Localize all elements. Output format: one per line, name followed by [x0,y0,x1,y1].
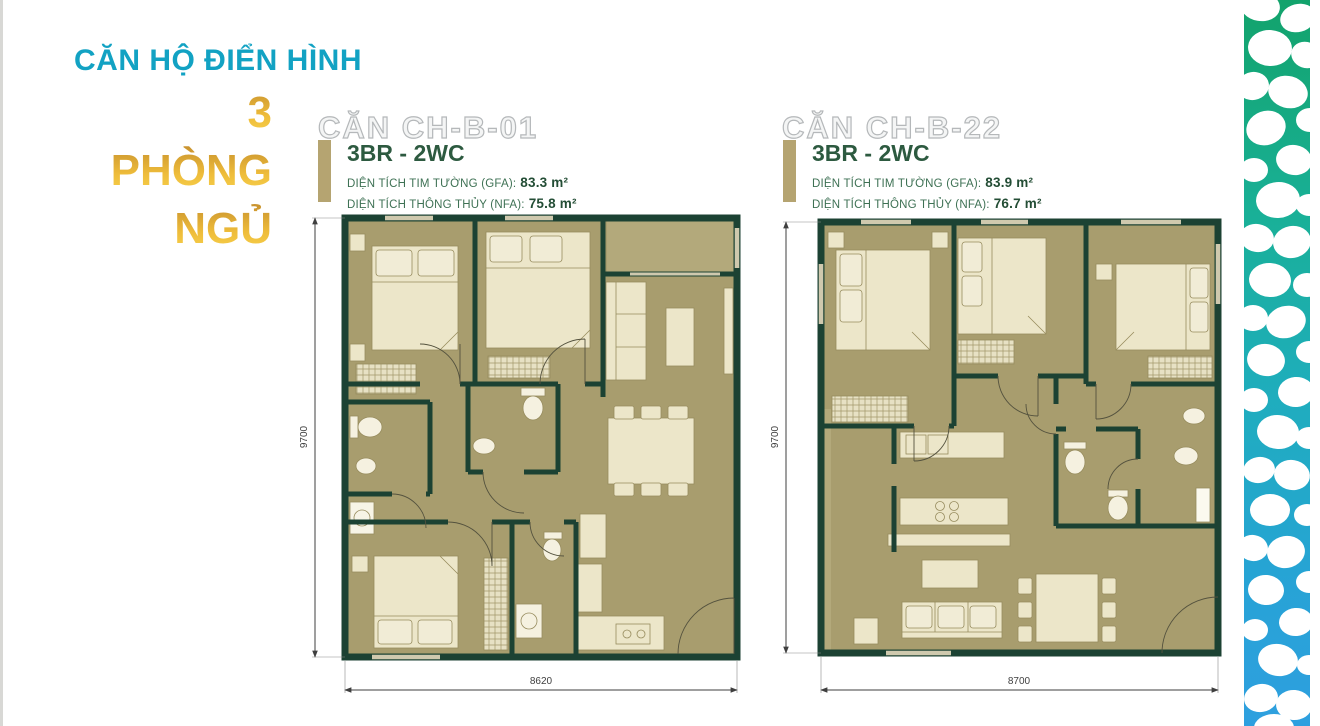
bedroom1-wardrobe [832,396,908,422]
gfa-line: DIỆN TÍCH TIM TƯỜNG (GFA):83.3 m² [347,173,577,194]
bedroom-count-label: 3 PHÒNG NGỦ [40,84,272,258]
bedroom2-bed [958,238,1046,334]
plan-type: 3BR - 2WC [347,140,577,167]
bedroom-count-word2: NGỦ [40,200,272,258]
sofa [606,282,646,380]
plan-type: 3BR - 2WC [812,140,1042,167]
sofa [902,602,1002,638]
bedroom2-bed [486,232,590,348]
dim-width-label: 8700 [1008,676,1031,687]
bedroom3-wardrobe [1148,356,1212,378]
gfa-label: DIỆN TÍCH TIM TƯỜNG (GFA): [347,178,516,190]
left-edge-divider [0,0,3,726]
decorative-pebble-pattern [1240,0,1314,726]
balcony-floor [607,221,734,274]
gfa-label: DIỆN TÍCH TIM TƯỜNG (GFA): [812,178,981,190]
bedroom1-wardrobe [356,364,416,394]
side-table [854,618,878,644]
bedroom-count-number: 3 [40,84,272,142]
coffee-table [666,308,694,366]
bedroom1-bed [828,232,948,350]
bedroom3-wardrobe [484,558,508,650]
floorplan-ch-b-01: 9700 8620 [300,204,755,696]
dim-height-label: 9700 [770,425,781,448]
dim-height-label: 9700 [300,425,310,448]
info-accent-bar [783,140,796,202]
dim-width-label: 8620 [530,676,553,687]
brochure-page: CĂN HỘ ĐIỂN HÌNH 3 PHÒNG NGỦ CĂN CH-B-01… [0,0,1320,726]
gfa-value: 83.9 m² [985,175,1033,190]
coffee-table [922,560,978,588]
washer [350,502,374,534]
page-title: CĂN HỘ ĐIỂN HÌNH [74,44,362,78]
tv-cabinet [724,288,733,374]
floorplan-ch-b-22: 9700 8700 [766,204,1226,696]
bedroom2-wardrobe [958,340,1014,364]
dining-set [608,406,694,496]
gfa-value: 83.3 m² [520,175,568,190]
bedroom-count-word1: PHÒNG [40,142,272,200]
info-accent-bar [318,140,331,202]
gfa-line: DIỆN TÍCH TIM TƯỜNG (GFA):83.9 m² [812,173,1042,194]
